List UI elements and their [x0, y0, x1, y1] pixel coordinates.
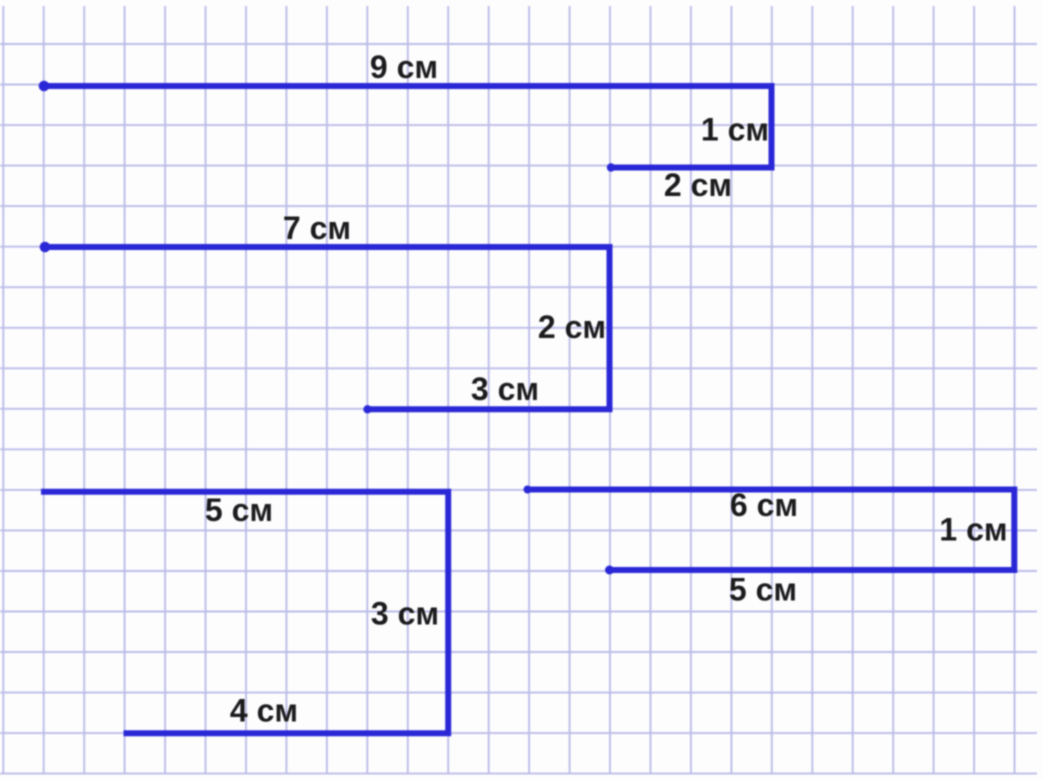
svg-text:6 см: 6 см [730, 487, 798, 523]
svg-text:5 см: 5 см [729, 572, 797, 608]
svg-text:5 см: 5 см [205, 492, 273, 528]
svg-text:2 см: 2 см [664, 167, 732, 203]
svg-text:9 см: 9 см [370, 49, 438, 85]
svg-text:1 см: 1 см [939, 512, 1007, 548]
svg-text:3 см: 3 см [371, 596, 439, 632]
svg-text:4 см: 4 см [230, 693, 298, 729]
svg-text:1 см: 1 см [701, 112, 769, 148]
svg-text:7 см: 7 см [283, 210, 351, 246]
svg-text:2 см: 2 см [538, 309, 606, 345]
svg-text:3 см: 3 см [471, 371, 539, 407]
